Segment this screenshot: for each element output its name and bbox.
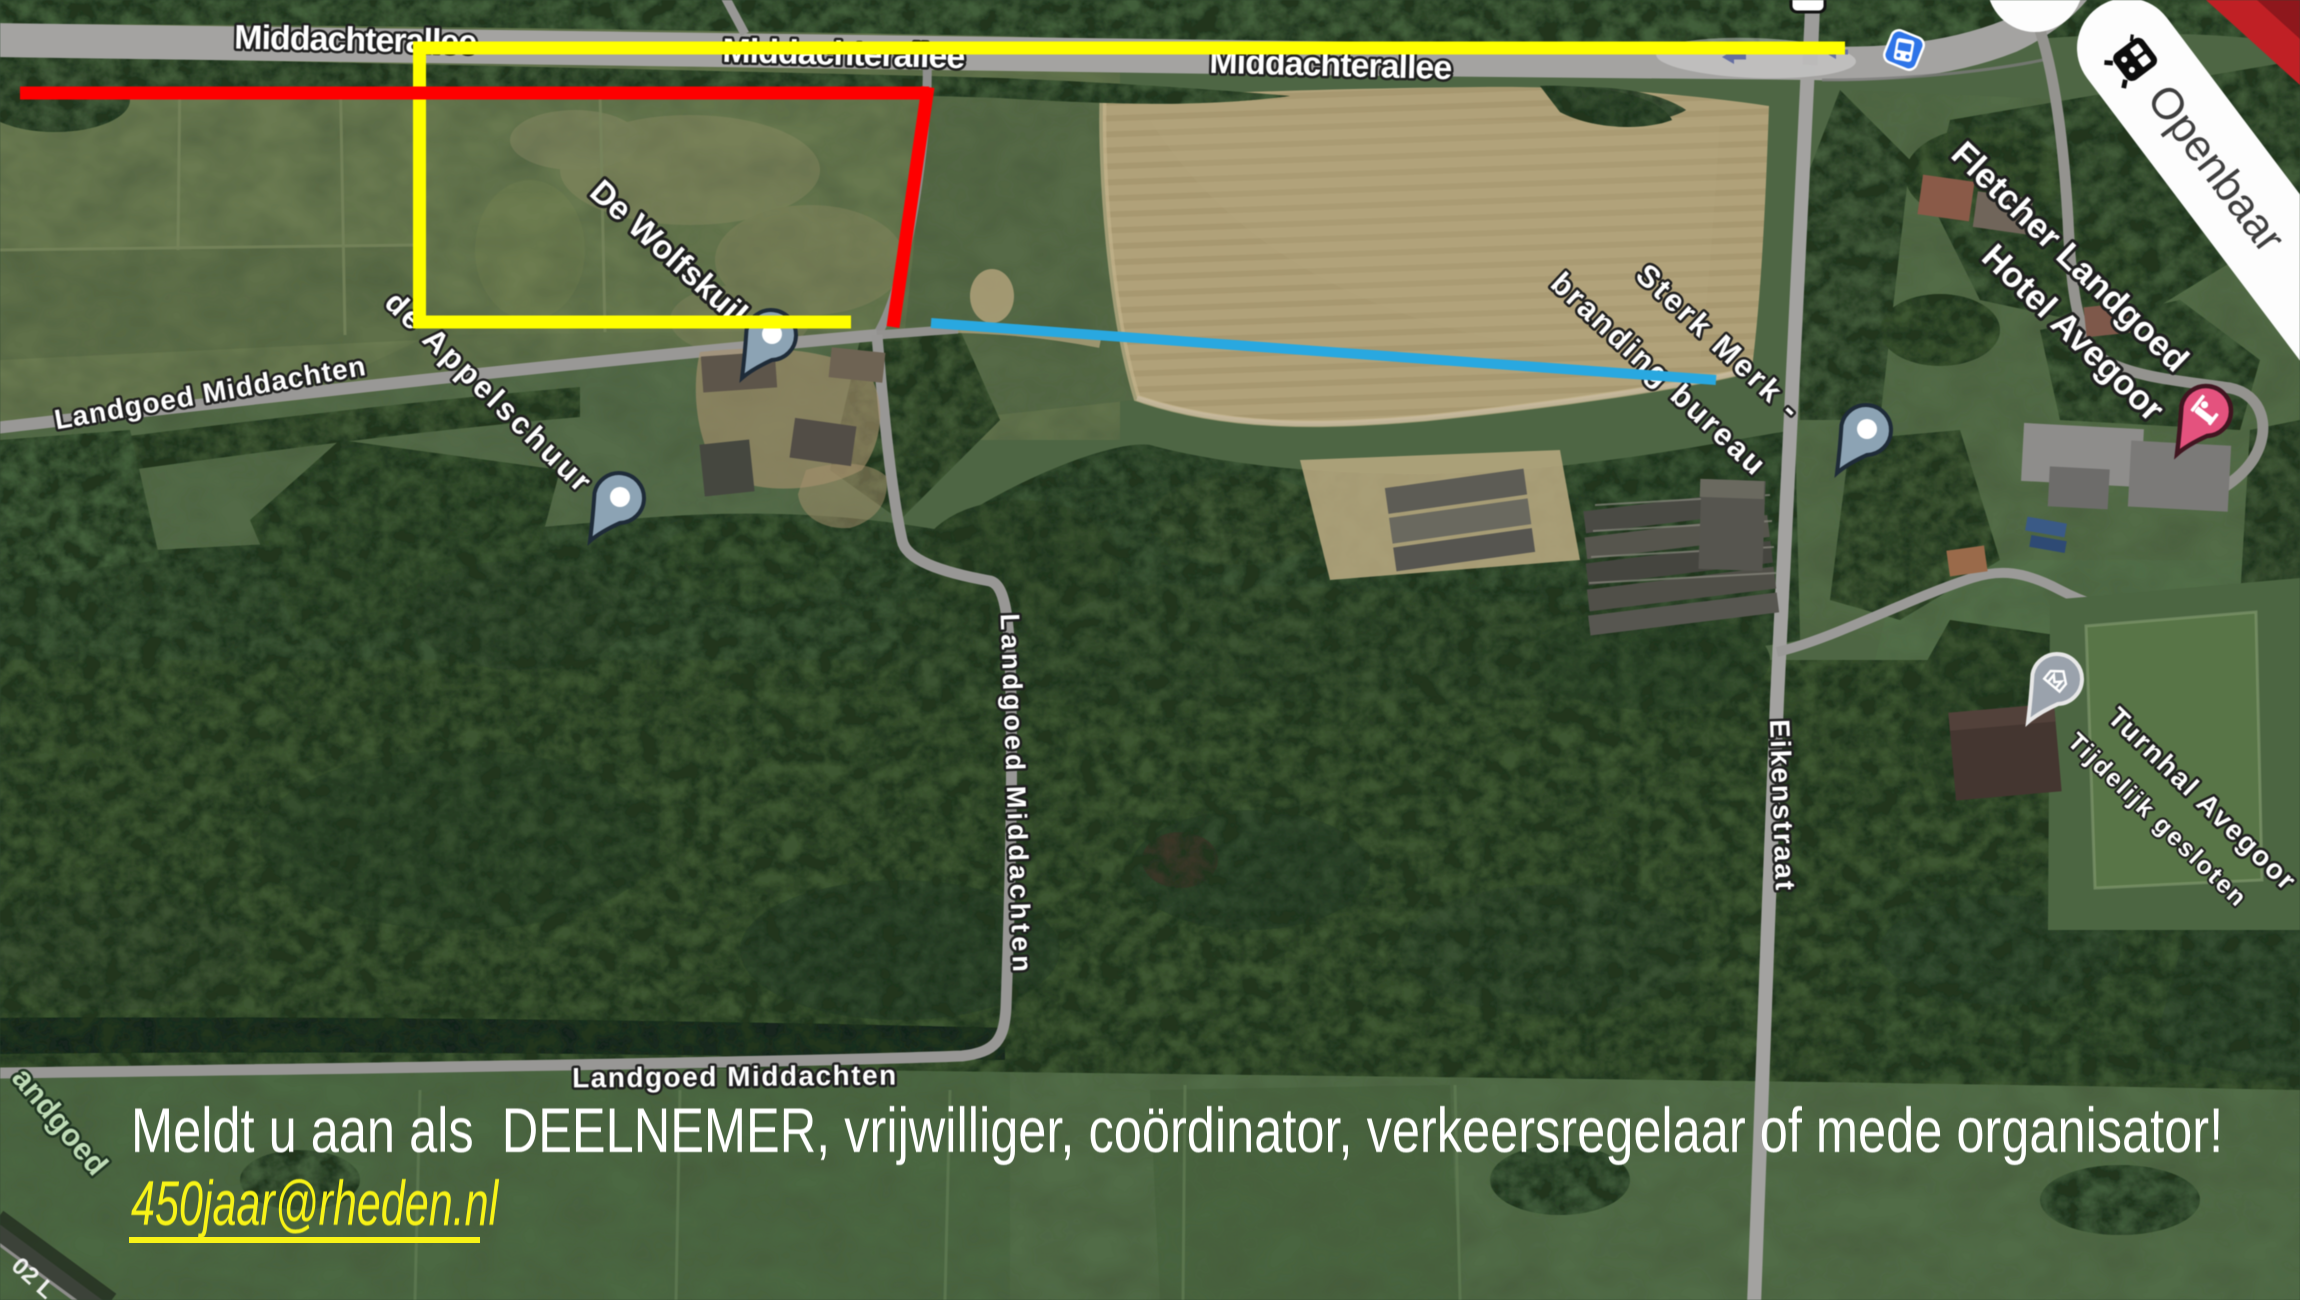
svg-text:Landgoed Middachten: Landgoed Middachten (572, 1060, 898, 1094)
svg-text:Eikenstraat: Eikenstraat (1764, 719, 1801, 893)
svg-text:Middachterallee: Middachterallee (234, 18, 477, 61)
